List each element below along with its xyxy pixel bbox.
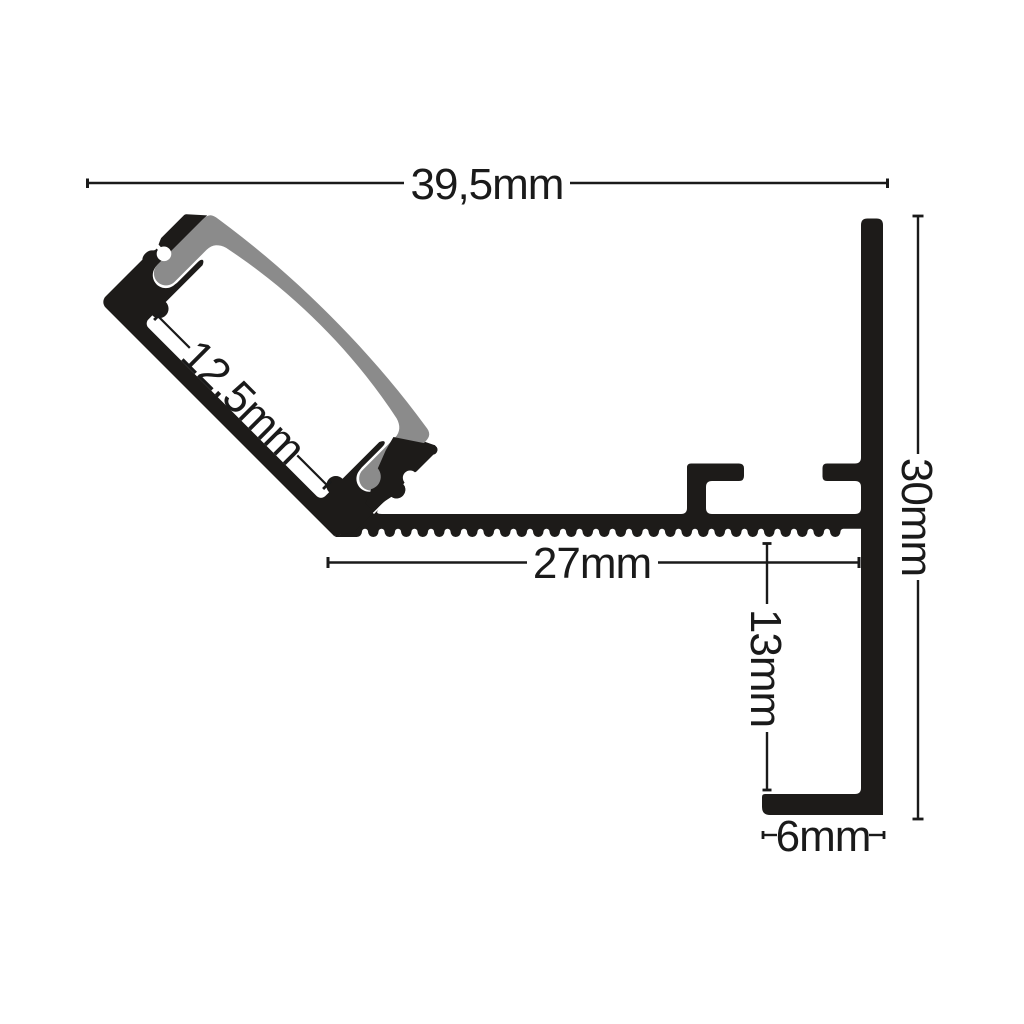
svg-text:39,5mm: 39,5mm <box>411 160 564 209</box>
svg-text:13mm: 13mm <box>741 609 790 727</box>
svg-text:6mm: 6mm <box>776 812 871 861</box>
svg-text:30mm: 30mm <box>892 458 941 576</box>
svg-text:27mm: 27mm <box>533 539 651 588</box>
